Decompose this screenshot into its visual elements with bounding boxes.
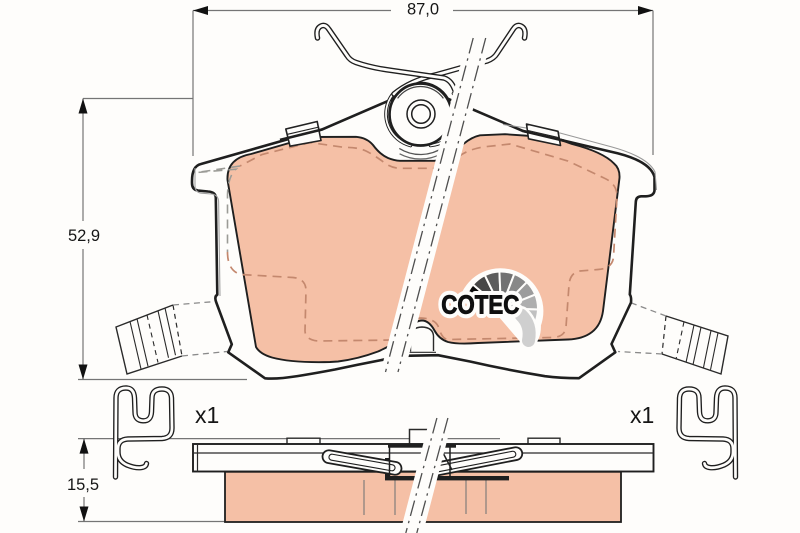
svg-text:52,9: 52,9 (68, 227, 100, 245)
svg-text:15,5: 15,5 (67, 476, 99, 494)
svg-text:x1: x1 (630, 402, 654, 428)
svg-text:x1: x1 (195, 402, 219, 428)
svg-text:87,0: 87,0 (407, 1, 439, 19)
svg-text:COTEC: COTEC (441, 290, 519, 320)
